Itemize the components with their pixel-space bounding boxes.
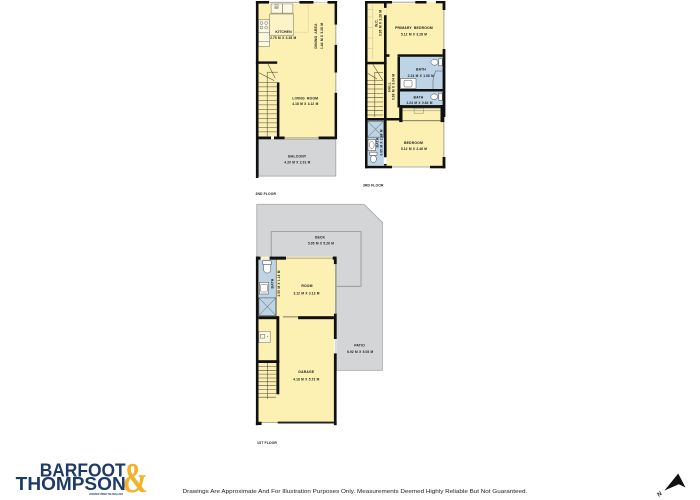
svg-text:0.95 M X 2.48 M: 0.95 M X 2.48 M xyxy=(380,129,384,155)
svg-text:PRIMARY BEDROOM: PRIMARY BEDROOM xyxy=(395,26,433,30)
svg-text:2.75 M X 3.28 M: 2.75 M X 3.28 M xyxy=(270,36,296,40)
svg-text:ROOM: ROOM xyxy=(301,284,312,288)
svg-text:2.24 M X 1.98 M: 2.24 M X 1.98 M xyxy=(408,74,434,78)
svg-text:BEDROOM: BEDROOM xyxy=(404,141,423,145)
svg-text:2ND FLOOR: 2ND FLOOR xyxy=(256,192,277,196)
svg-text:5.05 M X 5.26 M: 5.05 M X 5.26 M xyxy=(308,241,334,245)
svg-text:0.95 M X 3.28 M: 0.95 M X 3.28 M xyxy=(378,10,382,36)
svg-text:BATH: BATH xyxy=(270,278,274,288)
svg-text:BALCONY: BALCONY xyxy=(288,155,307,159)
svg-text:1ST FLOOR: 1ST FLOOR xyxy=(257,441,277,445)
svg-text:2.24 M X 0.84 M: 2.24 M X 0.84 M xyxy=(406,101,432,105)
svg-text:Drawings Are Approximate And F: Drawings Are Approximate And For Illustr… xyxy=(183,489,528,495)
svg-text:2.55 M X 1.18 M: 2.55 M X 1.18 M xyxy=(277,270,281,296)
svg-text:5.12 M X 3.28 M: 5.12 M X 3.28 M xyxy=(401,32,427,36)
svg-text:0.68 M X 3.04 M: 0.68 M X 3.04 M xyxy=(391,74,395,100)
svg-text:3RD FLOOR: 3RD FLOOR xyxy=(363,183,384,187)
svg-text:3.12 M X 3.13 M: 3.12 M X 3.13 M xyxy=(293,292,319,296)
svg-text:PATIO: PATIO xyxy=(354,344,365,348)
svg-text:DECK: DECK xyxy=(315,235,326,239)
svg-text:5.12 M X 2.46 M: 5.12 M X 2.46 M xyxy=(401,147,427,151)
svg-text:LICENSED UNDER THE REAA 2008: LICENSED UNDER THE REAA 2008 xyxy=(89,493,123,496)
svg-text:4.18 M X 5.73 M: 4.18 M X 5.73 M xyxy=(293,377,319,381)
svg-text:1.44 M X 3.28 M: 1.44 M X 3.28 M xyxy=(320,23,324,49)
svg-text:DINING AREA: DINING AREA xyxy=(314,23,318,49)
svg-text:BATH: BATH xyxy=(416,68,426,72)
svg-text:6.92 M X 5.05 M: 6.92 M X 5.05 M xyxy=(347,350,373,354)
svg-text:THOMPSON: THOMPSON xyxy=(16,473,126,494)
svg-text:BATH: BATH xyxy=(414,95,424,99)
svg-text:LIVING ROOM: LIVING ROOM xyxy=(292,96,318,100)
svg-text:4.18 M X 4.12 M: 4.18 M X 4.12 M xyxy=(292,102,318,106)
svg-text:&: & xyxy=(123,456,148,500)
svg-text:4.20 M X 2.01 M: 4.20 M X 2.01 M xyxy=(284,161,310,165)
svg-text:GARAGE: GARAGE xyxy=(298,370,315,374)
svg-text:KITCHEN: KITCHEN xyxy=(275,30,292,34)
